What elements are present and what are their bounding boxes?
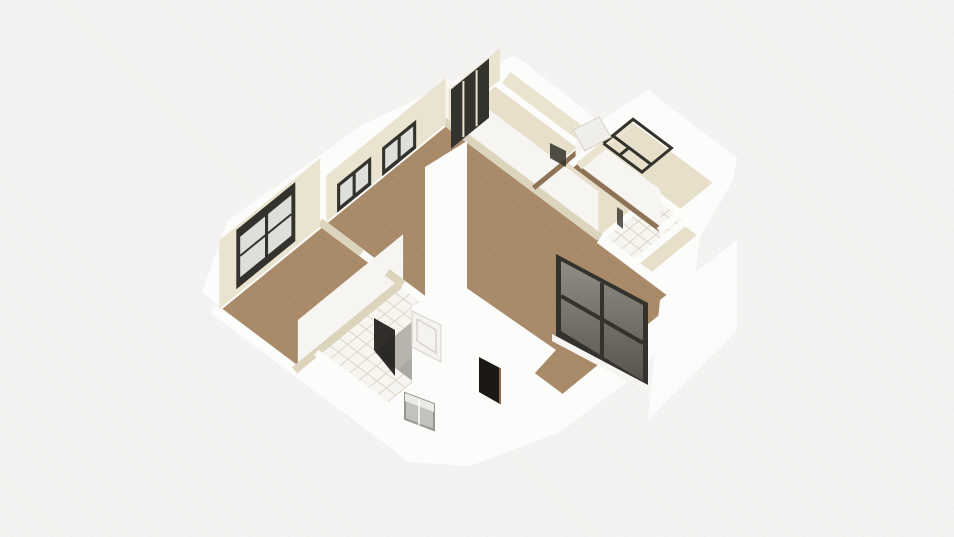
design-canvas[interactable] <box>0 0 954 537</box>
floor-plan-3d-render[interactable] <box>0 0 954 537</box>
